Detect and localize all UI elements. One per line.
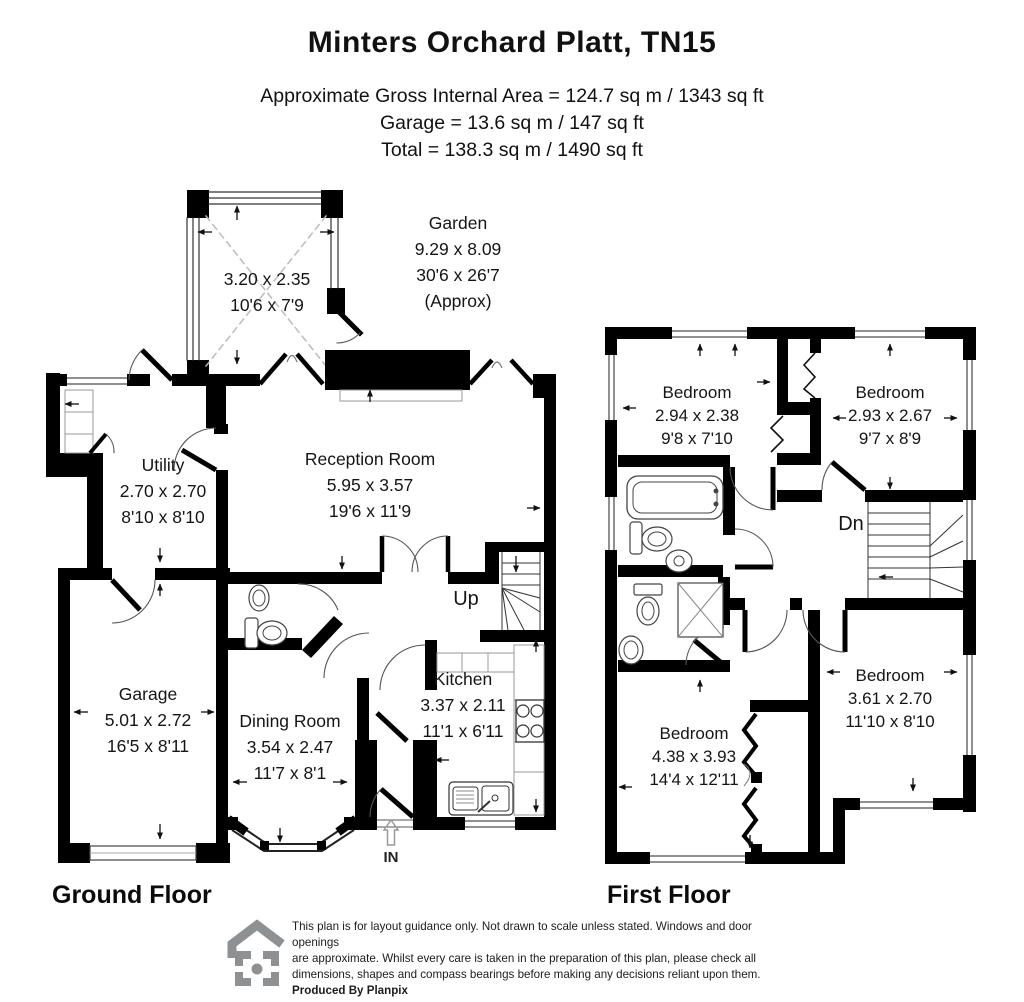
dining-bay-window [228,819,356,851]
ground-floor-title: Ground Floor [52,881,212,910]
toilet-icon [630,522,642,554]
page-title: Minters Orchard Platt, TN15 [0,26,1024,60]
room-label-bedroom-3: Bedroom 4.38 x 3.93 14'4 x 12'11 [649,722,738,791]
ground-stairs [502,552,540,630]
stairs-up-label: Up [453,588,479,611]
floorplan-page: Minters Orchard Platt, TN15 Approximate … [0,0,1024,1002]
garden-label: Garden 9.29 x 8.09 30'6 x 26'7 (Approx) [415,210,502,314]
disclaimer-text: This plan is for layout guidance only. N… [292,919,762,999]
first-floor-title: First Floor [607,881,731,910]
sink-icon [449,782,513,815]
area-line-1: Approximate Gross Internal Area = 124.7 … [0,85,1024,108]
closet-bifold-door [804,353,815,398]
stove-icon [516,700,544,742]
room-label-reception: Reception Room 5.95 x 3.57 19'6 x 11'9 [305,446,435,524]
planpix-logo-icon [232,925,282,982]
room-label-kitchen: Kitchen 3.37 x 2.11 11'1 x 6'11 [420,666,505,744]
toilet-icon [634,584,662,595]
entrance-arrow-icon [384,820,398,845]
bathroom-fixtures [627,476,723,572]
area-line-2: Garage = 13.6 sq m / 147 sq ft [0,112,1024,135]
utility-cupboard [65,390,93,453]
room-label-dining: Dining Room 3.54 x 2.47 11'7 x 8'1 [239,708,340,786]
room-label-garage: Garage 5.01 x 2.72 16'5 x 8'11 [105,681,192,759]
entrance-in-label: IN [384,849,399,866]
room-label-bedroom-2: Bedroom 2.93 x 2.67 9'7 x 8'9 [848,381,932,450]
closet-bifold-door [771,416,783,452]
area-line-3: Total = 138.3 sq m / 1490 sq ft [0,139,1024,162]
room-label-bedroom-4: Bedroom 3.61 x 2.70 11'10 x 8'10 [845,664,934,733]
wardrobe-zigzag-doors [744,714,762,854]
room-label-utility: Utility 2.70 x 2.70 8'10 x 8'10 [120,452,207,530]
stairs-down-label: Dn [838,513,864,536]
wc-fixtures [245,585,287,648]
conservatory-label: 3.20 x 2.35 10'6 x 7'9 [224,266,311,318]
room-label-bedroom-1: Bedroom 2.94 x 2.38 9'8 x 7'10 [655,381,739,450]
first-stairs [868,502,963,598]
produced-by-label: Produced By Planpix [292,983,762,999]
